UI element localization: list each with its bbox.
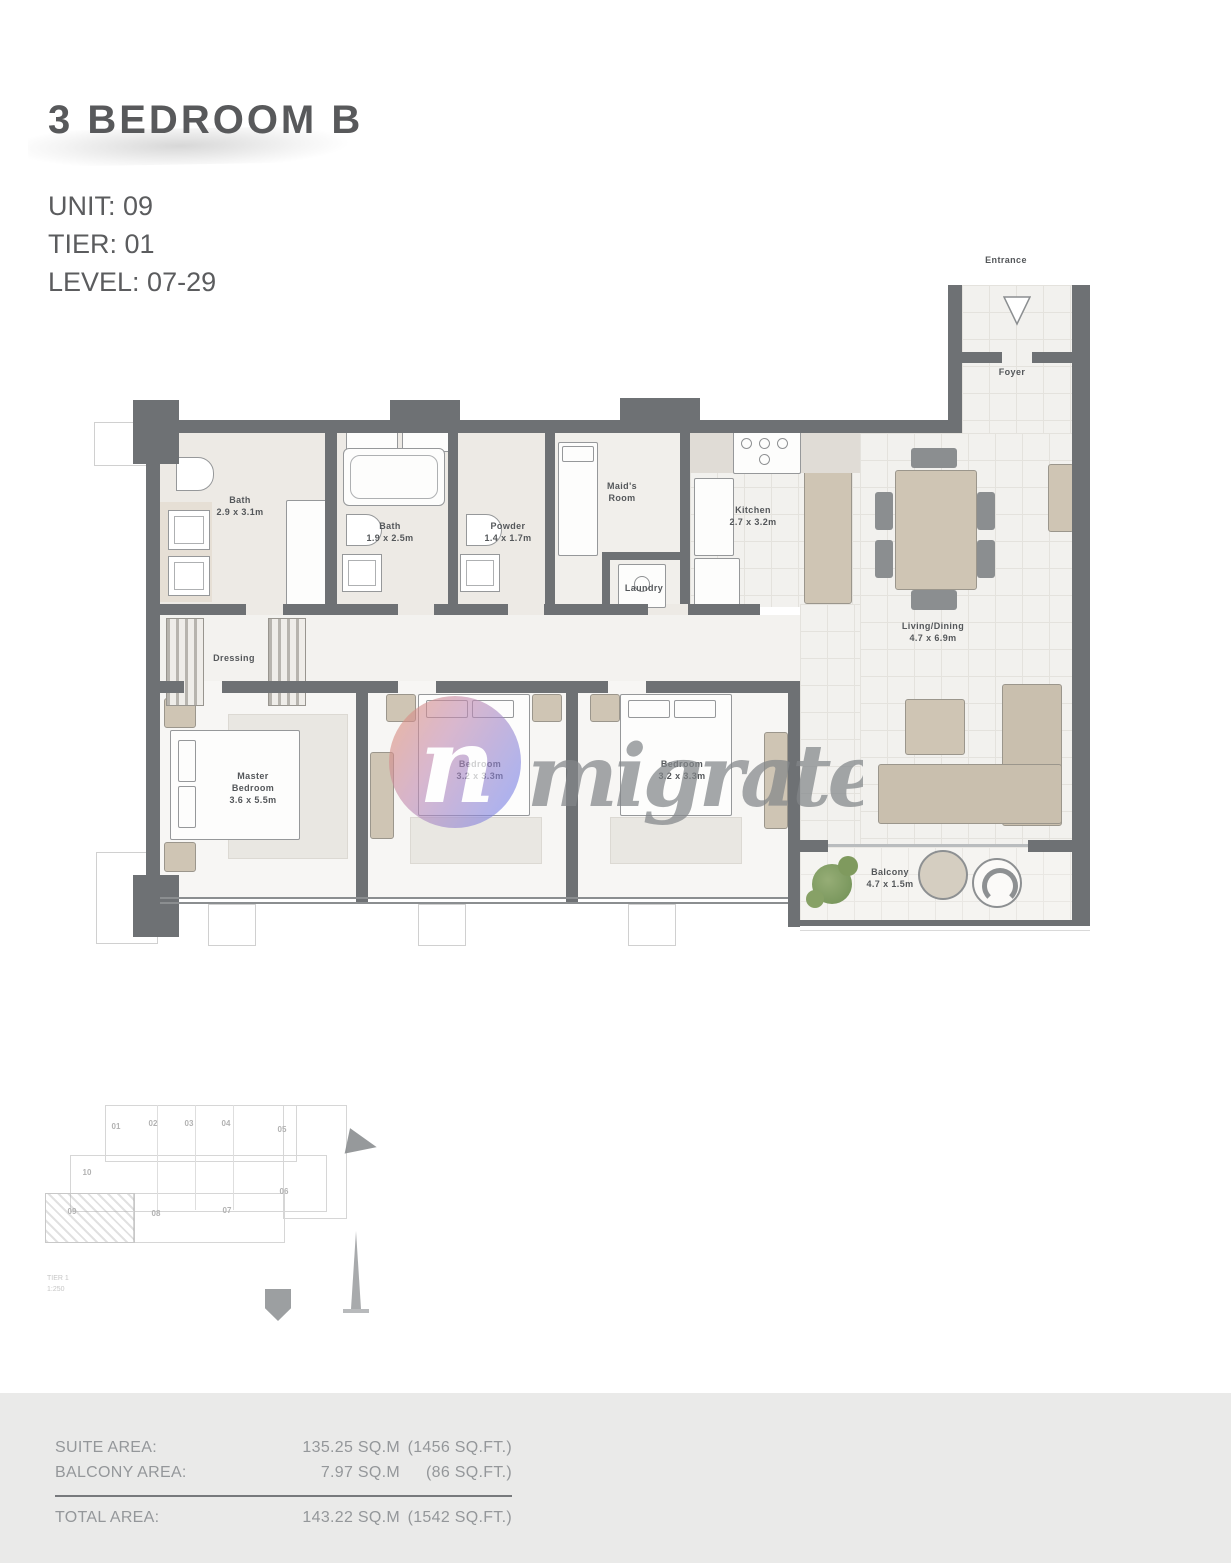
wall bbox=[283, 604, 325, 615]
wall bbox=[680, 420, 690, 604]
page-title: 3 BEDROOM B bbox=[48, 100, 363, 140]
balcony-area-sqm: 7.97 SQ.M bbox=[250, 1460, 400, 1485]
keyplan-block bbox=[133, 1193, 285, 1243]
suite-area-sqft: (1456 SQ.FT.) bbox=[400, 1435, 512, 1460]
nightstand bbox=[164, 842, 196, 872]
bathtub-inner bbox=[350, 455, 438, 499]
watermark-brand: migrate bbox=[527, 726, 863, 827]
total-area-sqm: 143.22 SQ.M bbox=[250, 1505, 400, 1530]
wall bbox=[146, 420, 160, 915]
watermark-monogram: n bbox=[419, 703, 495, 827]
plant-icon bbox=[806, 890, 824, 908]
room-label-laundry: Laundry bbox=[625, 582, 663, 594]
stove-burner bbox=[741, 438, 752, 449]
dining-chair bbox=[977, 540, 995, 578]
shaft bbox=[620, 398, 700, 420]
keyplan-unit09-hatched bbox=[45, 1193, 135, 1243]
tv-unit bbox=[1048, 464, 1074, 532]
dining-table bbox=[895, 470, 977, 590]
toilet-icon bbox=[176, 457, 214, 491]
wall bbox=[688, 604, 760, 615]
kitchen-cabinet bbox=[694, 558, 740, 606]
dining-chair bbox=[875, 492, 893, 530]
room-label-maids: Maid's Room bbox=[601, 480, 643, 504]
room-label-living: Living/Dining 4.7 x 6.9m bbox=[902, 620, 964, 644]
balcony-area-label: BALCONY AREA: bbox=[55, 1460, 250, 1485]
dining-chair bbox=[875, 540, 893, 578]
dining-chair bbox=[911, 448, 957, 468]
room-label-bath1: Bath 2.9 x 3.1m bbox=[216, 494, 263, 518]
pillow bbox=[178, 740, 196, 782]
room-label-master: Master Bedroom 3.6 x 5.5m bbox=[224, 770, 282, 806]
balcony-chair-back bbox=[982, 868, 1018, 904]
plant-icon bbox=[838, 856, 858, 876]
keyplan-unit-03: 03 bbox=[178, 1120, 200, 1128]
area-total-divider bbox=[55, 1495, 512, 1497]
wall bbox=[1028, 840, 1072, 852]
wall bbox=[962, 352, 1002, 363]
area-row-total: TOTAL AREA: 143.22 SQ.M (1542 SQ.FT.) bbox=[55, 1505, 515, 1530]
exterior-stub bbox=[418, 904, 466, 946]
wall bbox=[800, 840, 828, 852]
sink bbox=[168, 510, 210, 550]
wall bbox=[146, 604, 246, 615]
sink bbox=[168, 556, 210, 596]
floor-corridor bbox=[146, 615, 800, 681]
room-label-entrance: Entrance bbox=[985, 254, 1027, 266]
window-wall bbox=[160, 897, 788, 904]
watermark-logo: n migrate bbox=[385, 690, 863, 840]
stove-burner bbox=[759, 454, 770, 465]
north-arrow-icon bbox=[345, 1128, 380, 1160]
total-area-sqft: (1542 SQ.FT.) bbox=[400, 1505, 512, 1530]
wall bbox=[356, 681, 368, 904]
room-label-kitchen: Kitchen 2.7 x 3.2m bbox=[729, 504, 776, 528]
room-label-powder: Powder 1.4 x 1.7m bbox=[484, 520, 531, 544]
dining-chair bbox=[977, 492, 995, 530]
entry-door-icon bbox=[1003, 296, 1031, 326]
balcony-rail bbox=[800, 920, 1090, 926]
wall bbox=[1072, 285, 1090, 925]
stove-burner bbox=[759, 438, 770, 449]
balcony-area-sqft: (86 SQ.FT.) bbox=[400, 1460, 512, 1485]
exterior-stub bbox=[628, 904, 676, 946]
keyplan-unit-01: 01 bbox=[105, 1123, 127, 1131]
balcony-chair bbox=[918, 850, 968, 900]
page: { "header": { "title": "3 BEDROOM B", "u… bbox=[0, 0, 1231, 1563]
area-summary-strip: SUITE AREA: 135.25 SQ.M (1456 SQ.FT.) BA… bbox=[0, 1393, 1231, 1563]
keyplan-note-line1: TIER 1 bbox=[47, 1273, 69, 1284]
sofa-l-horizontal bbox=[878, 764, 1062, 824]
keyplan-unit-08: 08 bbox=[145, 1210, 167, 1218]
wall bbox=[337, 604, 398, 615]
burj-tower-icon bbox=[351, 1231, 361, 1309]
stove bbox=[733, 428, 801, 474]
keyplan-block bbox=[105, 1105, 297, 1162]
room-label-balcony: Balcony 4.7 x 1.5m bbox=[866, 866, 913, 890]
wall bbox=[602, 552, 688, 560]
unit-number: UNIT: 09 bbox=[48, 188, 153, 226]
balcony-edge-line bbox=[800, 930, 1090, 931]
keyplan-unit-09: 09 bbox=[61, 1208, 83, 1216]
room-label-dressing: Dressing bbox=[213, 652, 255, 664]
pillow bbox=[562, 446, 594, 462]
wall bbox=[602, 552, 610, 614]
room-label-bath2: Bath 1.9 x 2.5m bbox=[366, 520, 413, 544]
stove-burner bbox=[777, 438, 788, 449]
keyplan-note: TIER 1 1:250 bbox=[47, 1273, 69, 1295]
suite-area-label: SUITE AREA: bbox=[55, 1435, 250, 1460]
wall bbox=[948, 285, 962, 433]
floor-plan: Entrance Foyer Bath 2.9 x 3.1m Bath 1.9 … bbox=[88, 252, 1098, 967]
column bbox=[133, 400, 179, 464]
fridge bbox=[694, 478, 734, 556]
key-plan: 01 02 03 04 05 10 06 09 08 07 TIER 1 1:2… bbox=[45, 1093, 390, 1338]
keyplan-block bbox=[283, 1105, 347, 1219]
keyplan-unit-10: 10 bbox=[76, 1169, 98, 1177]
sink bbox=[342, 554, 382, 592]
wall bbox=[545, 420, 555, 604]
area-row-balcony: BALCONY AREA: 7.97 SQ.M (86 SQ.FT.) bbox=[55, 1460, 515, 1485]
sink bbox=[460, 554, 500, 592]
burj-tower-base bbox=[343, 1309, 369, 1313]
wall bbox=[133, 420, 948, 433]
wall bbox=[1032, 352, 1072, 363]
keyplan-note-line2: 1:250 bbox=[47, 1284, 69, 1295]
wall bbox=[325, 420, 337, 615]
wall bbox=[544, 604, 648, 615]
sliding-door-line bbox=[828, 844, 1028, 847]
wall bbox=[448, 420, 458, 604]
keyplan-unit-07: 07 bbox=[216, 1207, 238, 1215]
suite-area-sqm: 135.25 SQ.M bbox=[250, 1435, 400, 1460]
column bbox=[133, 875, 179, 937]
room-label-foyer: Foyer bbox=[999, 366, 1026, 378]
shaft bbox=[390, 400, 460, 420]
wall bbox=[434, 604, 508, 615]
pillow bbox=[178, 786, 196, 828]
wall bbox=[222, 681, 356, 693]
keyplan-unit-05: 05 bbox=[271, 1126, 293, 1134]
kitchen-island bbox=[804, 467, 852, 604]
ottoman bbox=[905, 699, 965, 755]
area-row-suite: SUITE AREA: 135.25 SQ.M (1456 SQ.FT.) bbox=[55, 1435, 515, 1460]
keyplan-unit-04: 04 bbox=[215, 1120, 237, 1128]
exterior-stub bbox=[208, 904, 256, 946]
wall bbox=[146, 681, 184, 693]
dining-chair bbox=[911, 590, 957, 610]
keyplan-unit-06: 06 bbox=[273, 1188, 295, 1196]
keyplan-unit-02: 02 bbox=[142, 1120, 164, 1128]
total-area-label: TOTAL AREA: bbox=[55, 1505, 250, 1530]
shield-icon bbox=[265, 1289, 291, 1321]
